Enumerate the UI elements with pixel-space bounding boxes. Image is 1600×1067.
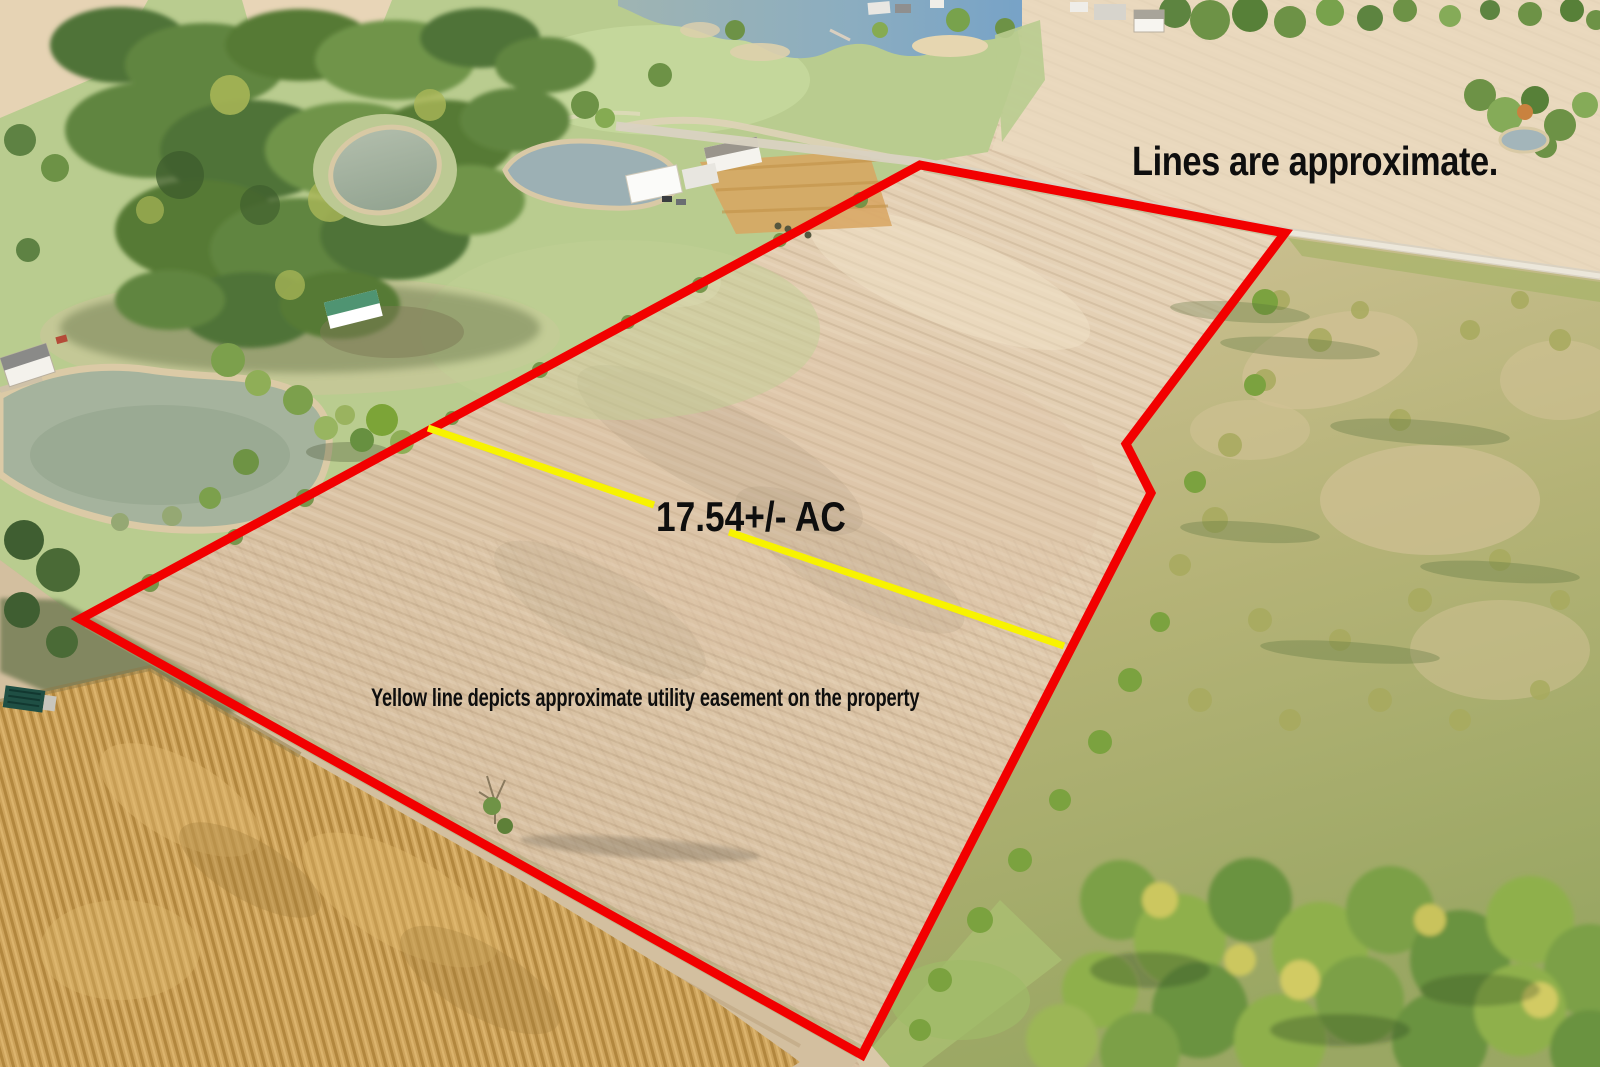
aerial-listing-photo: Lines are approximate. 17.54+/- AC Yello… — [0, 0, 1600, 1067]
disclaimer-text: Lines are approximate. — [1132, 141, 1498, 182]
easement-note: Yellow line depicts approximate utility … — [371, 686, 919, 711]
acreage-label: 17.54+/- AC — [656, 496, 846, 538]
forest-pond — [313, 114, 457, 226]
